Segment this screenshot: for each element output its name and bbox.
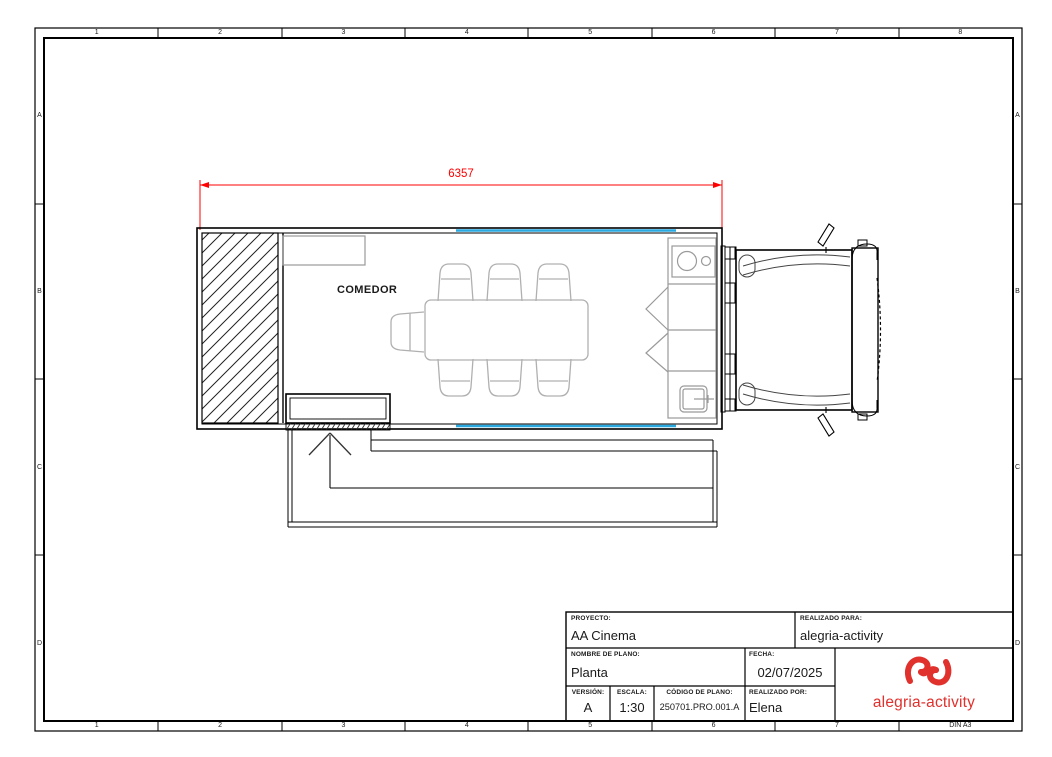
codigo-de-plano-value: 250701.PRO.001.A: [654, 702, 745, 712]
grid-column-label: 8: [899, 28, 1022, 38]
grid-row-label: B: [1013, 204, 1022, 380]
awning-lines: [456, 231, 676, 427]
grid-band-left: A B C D: [35, 28, 44, 731]
codigo-de-plano-label: CÓDIGO DE PLANO:: [654, 689, 745, 696]
grid-row-label: B: [35, 204, 44, 380]
alegria-activity-logo-text: alegria-activity: [835, 694, 1013, 712]
nombre-de-plano-label: NOMBRE DE PLANO:: [571, 651, 640, 658]
room-label: COMEDOR: [337, 284, 397, 296]
grid-row-label: D: [1013, 555, 1022, 731]
realizado-para-value: alegria-activity: [800, 628, 883, 643]
chair: [536, 264, 571, 301]
dining-set: [391, 264, 588, 396]
grid-band-bottom: 1 2 3 4 5 6 7 DIN A3: [35, 721, 1022, 731]
grid-row-label: A: [35, 28, 44, 204]
truck-cab: [721, 224, 881, 436]
floor-plan-drawing: [0, 0, 1052, 757]
grid-band-top: 1 2 3 4 5 6 7 8: [35, 28, 1022, 38]
sink-tap: [702, 257, 711, 266]
cab-mirrors: [818, 224, 834, 436]
nombre-de-plano-value: Planta: [571, 665, 608, 680]
appliance: [680, 386, 714, 412]
fecha-label: FECHA:: [749, 651, 774, 658]
realizado-para-label: REALIZADO PARA:: [800, 615, 862, 622]
grid-ticks: [35, 28, 1022, 731]
chair: [536, 359, 571, 396]
grid-column-label: 7: [775, 721, 898, 731]
realizado-por-label: REALIZADO POR:: [749, 689, 807, 696]
version-label: VERSIÓN:: [566, 689, 610, 696]
realizado-por-value: Elena: [749, 700, 782, 715]
chair: [487, 359, 522, 396]
cab-seats: [739, 255, 850, 405]
sink-counter: [672, 246, 715, 277]
chair: [438, 264, 473, 301]
cab-front: [852, 240, 881, 420]
proyecto-value: AA Cinema: [571, 628, 636, 643]
grid-column-label: 1: [35, 28, 158, 38]
grid-column-label: 5: [529, 28, 652, 38]
sheet-format-label: DIN A3: [899, 721, 1022, 731]
fecha-value: 02/07/2025: [745, 665, 835, 680]
grid-column-label: 4: [405, 721, 528, 731]
door-leaf: [646, 333, 668, 372]
escala-label: ESCALA:: [610, 689, 654, 696]
chair: [487, 264, 522, 301]
escala-value: 1:30: [610, 700, 654, 715]
grid-column-label: 4: [405, 28, 528, 38]
dimension-label: 6357: [420, 168, 502, 180]
sheet-border: [35, 28, 1022, 731]
door-leaf: [646, 287, 668, 330]
proyecto-label: PROYECTO:: [571, 615, 611, 622]
grid-column-label: 3: [282, 721, 405, 731]
grid-row-label: C: [35, 380, 44, 556]
grid-row-label: A: [1013, 28, 1022, 204]
grid-column-label: 7: [775, 28, 898, 38]
grid-row-label: D: [35, 555, 44, 731]
chair: [391, 312, 424, 352]
kitchen-unit: [646, 238, 716, 418]
chair: [438, 359, 473, 396]
grid-row-label: C: [1013, 380, 1022, 556]
door-threshold: [286, 423, 390, 430]
grid-column-label: 3: [282, 28, 405, 38]
grid-column-label: 5: [529, 721, 652, 731]
version-value: A: [566, 700, 610, 715]
grid-column-label: 2: [158, 28, 281, 38]
entry-arrow: [309, 433, 351, 488]
platform-deck: [288, 430, 717, 527]
dimension-arrow-right: [713, 182, 722, 188]
dining-table: [425, 300, 588, 360]
hatched-compartment: [202, 233, 283, 423]
grid-column-label: 1: [35, 721, 158, 731]
cabinet-counter: [283, 236, 365, 265]
dimension-arrow-left: [200, 182, 209, 188]
entry-vestibule: [286, 394, 390, 430]
dimension-6357: [200, 180, 722, 230]
grid-column-label: 2: [158, 721, 281, 731]
grid-column-label: 6: [652, 721, 775, 731]
grid-column-label: 6: [652, 28, 775, 38]
grid-band-right: A B C D: [1013, 28, 1022, 731]
alegria-activity-logo-icon: [901, 651, 955, 691]
drawing-sheet: 1 2 3 4 5 6 7 8 1 2 3 4 5 6 7 DIN A3 A B…: [0, 0, 1052, 757]
sink-bowl: [678, 252, 697, 271]
